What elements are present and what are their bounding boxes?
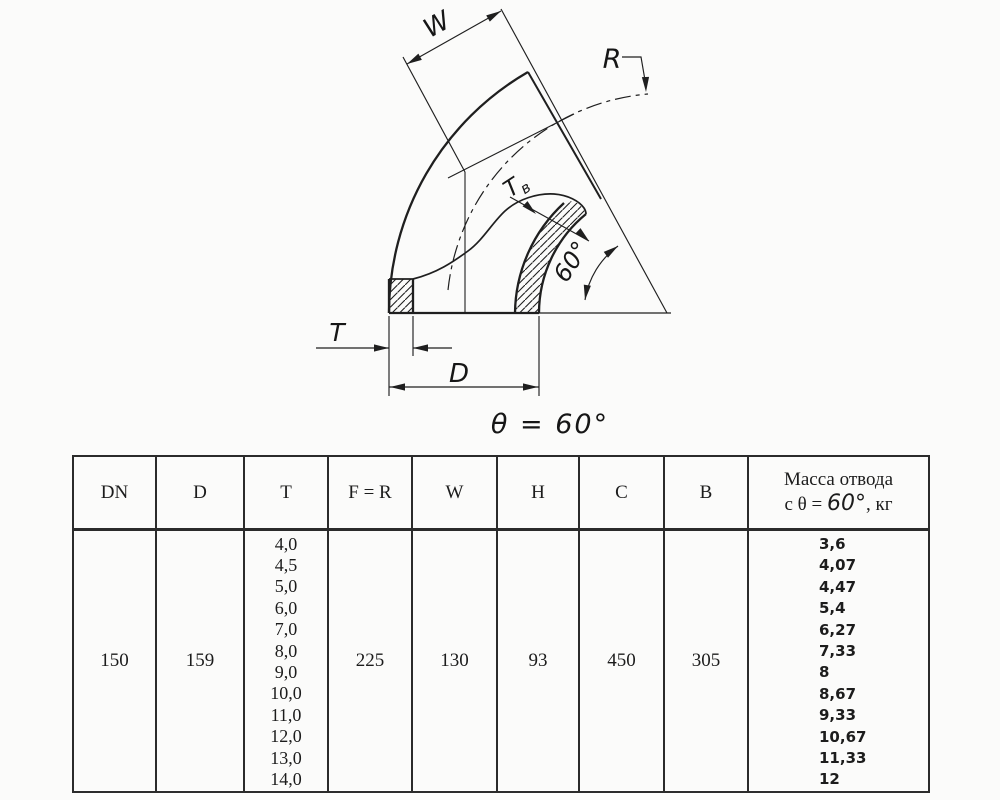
t-thickness-label: T xyxy=(329,318,346,347)
value-line: 4,5 xyxy=(245,555,327,576)
arrowhead-angle-lower xyxy=(581,285,590,301)
col-header-h: H xyxy=(497,456,579,530)
value-line: 9,33 xyxy=(819,705,928,726)
value-line: 6,0 xyxy=(245,598,327,619)
page: W R T D Тв 60° θ = 60° DN D T F = R W H … xyxy=(0,0,1000,800)
cell-fr: 225 xyxy=(328,530,412,792)
mass-header-line2: с θ = 60°, кг xyxy=(749,491,928,516)
dimensions-table: DN D T F = R W H C B Масса отвода с θ = … xyxy=(72,455,930,793)
cell-b: 305 xyxy=(664,530,748,792)
arrowhead-angle-upper xyxy=(604,243,620,258)
dimension-lines xyxy=(316,11,646,396)
col-header-w: W xyxy=(412,456,497,530)
value-line: 9,0 xyxy=(245,662,327,683)
cell-d: 159 xyxy=(156,530,244,792)
value-line: 12,0 xyxy=(245,726,327,747)
value-line: 8,0 xyxy=(245,641,327,662)
value-line: 10,67 xyxy=(819,727,928,748)
value-line: 13,0 xyxy=(245,748,327,769)
header-row: DN D T F = R W H C B Масса отвода с θ = … xyxy=(73,456,929,530)
col-header-d: D xyxy=(156,456,244,530)
arrowhead-w-right xyxy=(486,8,503,22)
arrowhead-d-right xyxy=(523,383,538,390)
mass-header-line1: Масса отвода xyxy=(749,469,928,491)
data-row: 150 159 4,04,55,06,07,08,09,010,011,012,… xyxy=(73,530,929,792)
tv-wall-thickness-label: Тв xyxy=(499,169,534,206)
value-line: 12 xyxy=(819,769,928,790)
col-header-mass: Масса отвода с θ = 60°, кг xyxy=(748,456,929,530)
value-line: 5,4 xyxy=(819,598,928,619)
arrowhead-tv-1 xyxy=(523,201,539,216)
arrowhead-r-leader xyxy=(642,77,650,92)
value-line: 8 xyxy=(819,662,928,683)
d-diameter-label: D xyxy=(449,359,469,389)
value-line: 4,47 xyxy=(819,577,928,598)
w-dimension-label: W xyxy=(419,5,457,44)
cell-h: 93 xyxy=(497,530,579,792)
col-header-dn: DN xyxy=(73,456,156,530)
value-line: 11,33 xyxy=(819,748,928,769)
value-line: 14,0 xyxy=(245,769,327,790)
mass-values-list: 3,64,074,475,46,277,3388,679,3310,6711,3… xyxy=(819,531,928,791)
mass-header-suffix: , кг xyxy=(866,494,893,515)
value-line: 11,0 xyxy=(245,705,327,726)
t-values-list: 4,04,55,06,07,08,09,010,011,012,013,014,… xyxy=(245,532,327,791)
col-header-b: B xyxy=(664,456,748,530)
mass-header-prefix: с θ = xyxy=(784,494,827,515)
value-line: 10,0 xyxy=(245,683,327,704)
cell-c: 450 xyxy=(579,530,664,792)
value-line: 3,6 xyxy=(819,534,928,555)
col-header-t: T xyxy=(244,456,328,530)
theta-caption: θ = 60° xyxy=(491,409,609,440)
cell-dn: 150 xyxy=(73,530,156,792)
value-line: 4,0 xyxy=(245,534,327,555)
value-line: 6,27 xyxy=(819,620,928,641)
r-radius-label: R xyxy=(603,44,622,75)
mass-header-angle: 60° xyxy=(827,491,866,516)
cell-mass: 3,64,074,475,46,277,3388,679,3310,6711,3… xyxy=(748,530,929,792)
col-header-c: C xyxy=(579,456,664,530)
value-line: 8,67 xyxy=(819,684,928,705)
arrowhead-t-left xyxy=(374,344,389,351)
value-line: 7,0 xyxy=(245,619,327,640)
value-line: 5,0 xyxy=(245,576,327,597)
value-line: 7,33 xyxy=(819,641,928,662)
arrowhead-d-left xyxy=(390,383,405,390)
elbow-technical-drawing: W R T D Тв 60° θ = 60° xyxy=(0,0,1000,450)
value-line: 4,07 xyxy=(819,555,928,576)
cell-w: 130 xyxy=(412,530,497,792)
arrowhead-t-right xyxy=(413,344,428,351)
cell-t: 4,04,55,06,07,08,09,010,011,012,013,014,… xyxy=(244,530,328,792)
col-header-fr: F = R xyxy=(328,456,412,530)
